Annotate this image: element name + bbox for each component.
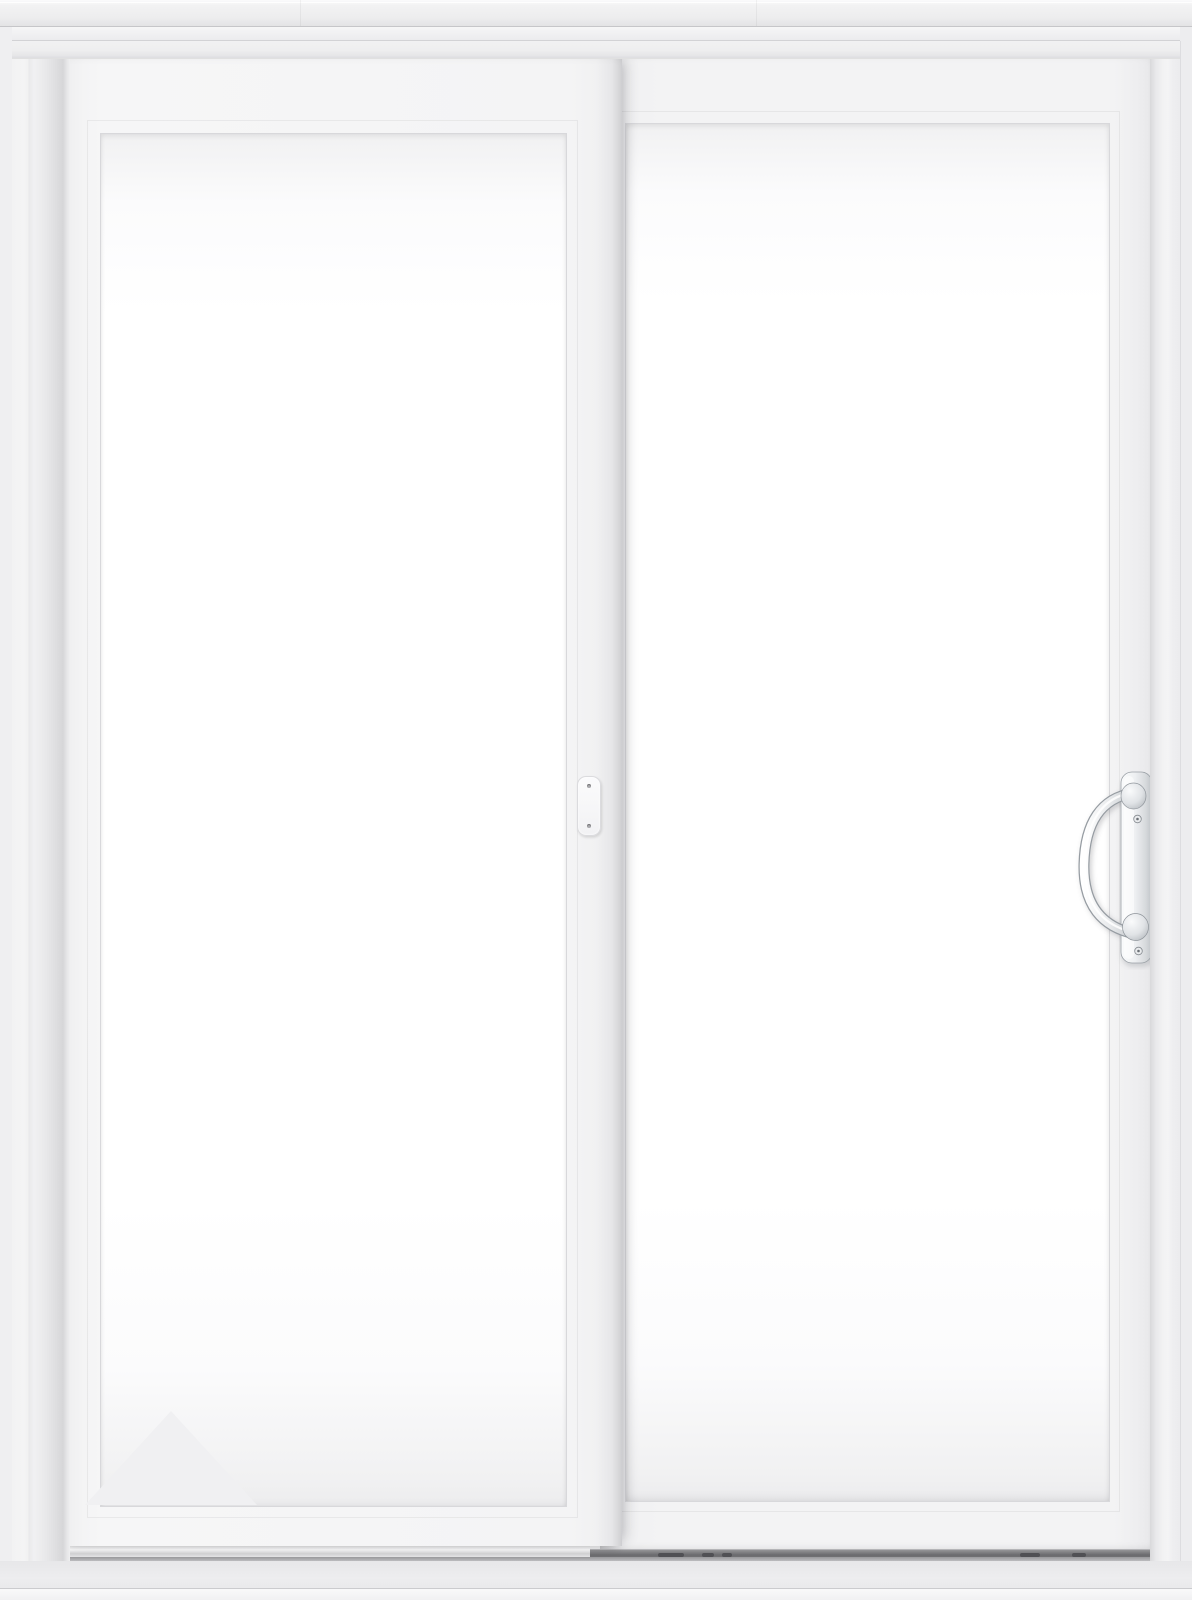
head-trim-seam [756,0,757,26]
right-door-panel [600,52,1150,1550]
door-handle [1075,765,1155,970]
frame-head-trim-inner [12,27,1180,41]
interlock-latch-plate [577,776,601,836]
left-door-glass [100,133,567,1507]
right-door-glass [625,123,1110,1502]
latch-screw-top [587,784,591,788]
frame-head-trim [0,0,1192,27]
sill-lip [0,1588,1192,1600]
door-sill [0,1561,1192,1600]
latch-screw-bottom [587,824,591,828]
frame-head [12,41,1180,59]
door-handle-graphic [1075,765,1155,970]
handle-screw-bottom-slot [1137,950,1140,953]
head-trim-seam [300,0,301,26]
frame-left-jamb [12,41,70,1562]
left-door-panel [60,54,622,1546]
patio-door-product-render [0,0,1192,1600]
head-trim-highlight [0,2,1192,3]
handle-bottom-knob [1123,914,1149,941]
handle-screw-top-slot [1136,818,1139,821]
frame-right-jamb [1150,41,1181,1562]
handle-top-knob [1121,783,1146,809]
